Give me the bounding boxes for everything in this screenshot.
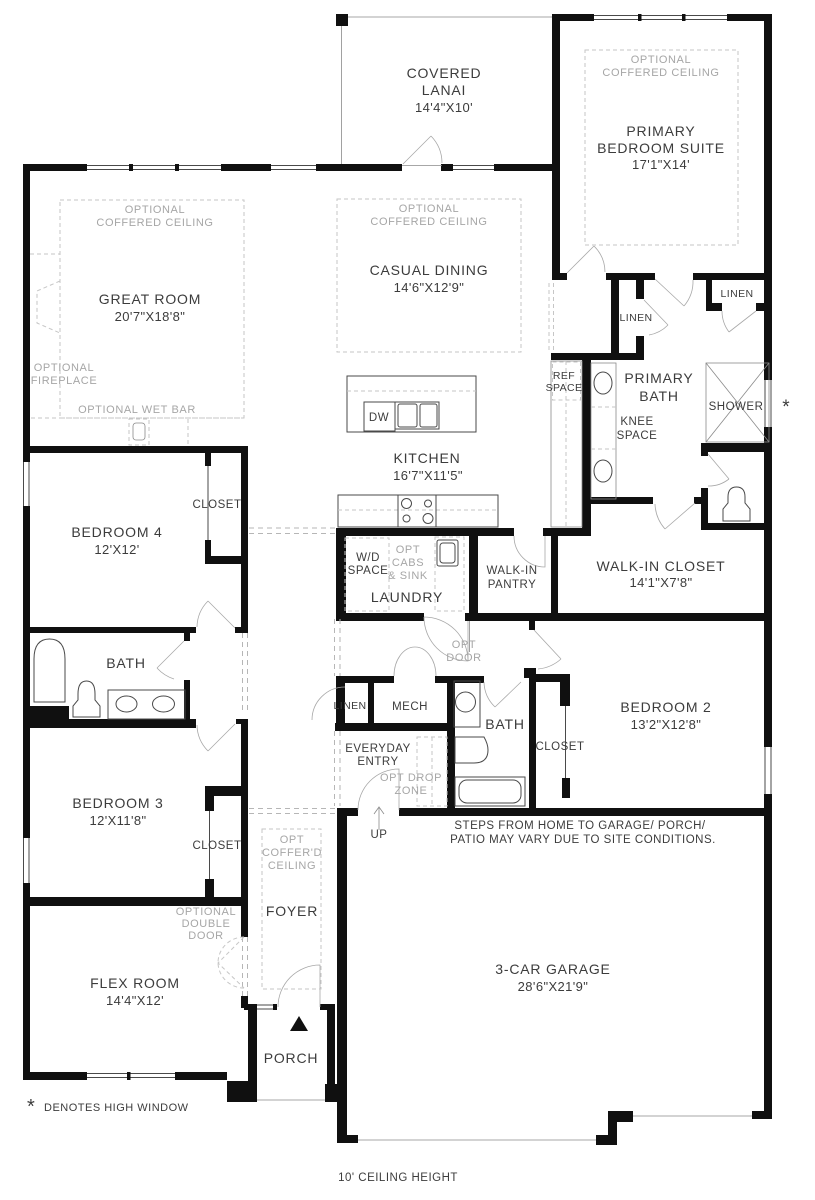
svg-text:PATIO MAY VARY DUE TO SITE CON: PATIO MAY VARY DUE TO SITE CONDITIONS. bbox=[450, 834, 716, 846]
svg-text:WALK-IN CLOSET: WALK-IN CLOSET bbox=[597, 558, 726, 574]
svg-text:CLOSET: CLOSET bbox=[192, 499, 241, 511]
svg-text:OPT DROP: OPT DROP bbox=[380, 772, 442, 784]
svg-text:LINEN: LINEN bbox=[334, 700, 367, 712]
svg-text:14'1"X7'8": 14'1"X7'8" bbox=[629, 575, 692, 590]
svg-text:COFFERED CEILING: COFFERED CEILING bbox=[370, 216, 487, 228]
svg-text:BEDROOM 3: BEDROOM 3 bbox=[72, 795, 163, 811]
svg-text:OPTIONAL: OPTIONAL bbox=[631, 54, 691, 66]
svg-text:14'4"X10': 14'4"X10' bbox=[415, 100, 473, 115]
svg-text:COFFERED CEILING: COFFERED CEILING bbox=[602, 67, 719, 79]
svg-text:OPTIONAL: OPTIONAL bbox=[34, 362, 94, 374]
svg-text:PORCH: PORCH bbox=[264, 1050, 319, 1066]
svg-text:STEPS FROM HOME TO GARAGE/ POR: STEPS FROM HOME TO GARAGE/ PORCH/ bbox=[454, 820, 706, 832]
svg-text:MECH: MECH bbox=[392, 701, 428, 713]
svg-text:DOOR: DOOR bbox=[446, 652, 481, 664]
svg-text:CLOSET: CLOSET bbox=[192, 840, 241, 852]
svg-text:BEDROOM 2: BEDROOM 2 bbox=[620, 699, 711, 715]
svg-text:13'2"X12'8": 13'2"X12'8" bbox=[631, 717, 702, 732]
svg-text:CASUAL DINING: CASUAL DINING bbox=[370, 262, 489, 278]
svg-text:*: * bbox=[782, 397, 790, 418]
svg-text:OPTIONAL: OPTIONAL bbox=[125, 204, 185, 216]
svg-text:FIREPLACE: FIREPLACE bbox=[31, 375, 98, 387]
svg-text:EVERYDAY: EVERYDAY bbox=[345, 743, 411, 755]
svg-text:10' CEILING HEIGHT: 10' CEILING HEIGHT bbox=[338, 1172, 458, 1184]
svg-text:BEDROOM SUITE: BEDROOM SUITE bbox=[597, 140, 725, 156]
svg-text:CABS: CABS bbox=[392, 557, 424, 569]
svg-text:BEDROOM 4: BEDROOM 4 bbox=[71, 524, 162, 540]
svg-text:DENOTES HIGH WINDOW: DENOTES HIGH WINDOW bbox=[44, 1102, 189, 1114]
svg-text:17'1"X14': 17'1"X14' bbox=[632, 157, 690, 172]
svg-text:14'6"X12'9": 14'6"X12'9" bbox=[394, 280, 465, 295]
svg-text:16'7"X11'5": 16'7"X11'5" bbox=[393, 468, 463, 483]
svg-text:ZONE: ZONE bbox=[395, 785, 428, 797]
svg-text:OPT: OPT bbox=[452, 639, 476, 651]
svg-text:LINEN: LINEN bbox=[721, 288, 754, 300]
svg-text:SPACE: SPACE bbox=[348, 565, 389, 577]
svg-text:UP: UP bbox=[371, 829, 388, 841]
svg-text:CLOSET: CLOSET bbox=[535, 741, 584, 753]
svg-text:COFFER'D: COFFER'D bbox=[262, 847, 322, 859]
svg-text:GREAT ROOM: GREAT ROOM bbox=[99, 291, 201, 307]
svg-text:BATH: BATH bbox=[639, 388, 679, 404]
svg-text:28'6"X21'9": 28'6"X21'9" bbox=[518, 979, 589, 994]
svg-text:PRIMARY: PRIMARY bbox=[626, 123, 695, 139]
svg-text:CEILING: CEILING bbox=[268, 860, 316, 872]
svg-text:LANAI: LANAI bbox=[422, 82, 466, 98]
svg-text:DOOR: DOOR bbox=[188, 930, 223, 942]
svg-text:FLEX ROOM: FLEX ROOM bbox=[90, 975, 180, 991]
svg-text:BATH: BATH bbox=[106, 655, 146, 671]
svg-text:DW: DW bbox=[369, 412, 389, 424]
svg-text:W/D: W/D bbox=[356, 552, 380, 564]
svg-text:SPACE: SPACE bbox=[617, 430, 658, 442]
svg-text:OPT: OPT bbox=[396, 544, 420, 556]
svg-text:COFFERED CEILING: COFFERED CEILING bbox=[96, 217, 213, 229]
svg-text:COVERED: COVERED bbox=[407, 65, 482, 81]
svg-text:SHOWER: SHOWER bbox=[709, 401, 764, 413]
svg-text:OPT: OPT bbox=[280, 834, 304, 846]
svg-text:SPACE: SPACE bbox=[546, 382, 583, 394]
svg-text:FOYER: FOYER bbox=[266, 903, 318, 919]
svg-text:LAUNDRY: LAUNDRY bbox=[371, 589, 443, 605]
svg-text:12'X12': 12'X12' bbox=[94, 542, 139, 557]
svg-text:KNEE: KNEE bbox=[620, 416, 653, 428]
svg-text:14'4"X12': 14'4"X12' bbox=[106, 993, 164, 1008]
svg-text:OPTIONAL WET BAR: OPTIONAL WET BAR bbox=[78, 404, 196, 416]
svg-text:OPTIONAL: OPTIONAL bbox=[176, 906, 236, 918]
svg-text:PRIMARY: PRIMARY bbox=[624, 370, 693, 386]
svg-text:BATH: BATH bbox=[485, 716, 525, 732]
svg-text:DOUBLE: DOUBLE bbox=[182, 918, 231, 930]
svg-text:KITCHEN: KITCHEN bbox=[393, 450, 460, 466]
svg-text:OPTIONAL: OPTIONAL bbox=[399, 203, 459, 215]
svg-text:PANTRY: PANTRY bbox=[488, 579, 537, 591]
svg-text:LINEN: LINEN bbox=[620, 312, 653, 324]
svg-text:*: * bbox=[27, 1096, 35, 1118]
svg-text:3-CAR GARAGE: 3-CAR GARAGE bbox=[495, 961, 610, 977]
svg-text:20'7"X18'8": 20'7"X18'8" bbox=[115, 309, 186, 324]
svg-text:WALK-IN: WALK-IN bbox=[487, 565, 538, 577]
svg-text:ENTRY: ENTRY bbox=[357, 756, 398, 768]
svg-text:REF: REF bbox=[553, 370, 575, 382]
svg-text:& SINK: & SINK bbox=[388, 570, 428, 582]
svg-text:12'X11'8": 12'X11'8" bbox=[89, 813, 146, 828]
